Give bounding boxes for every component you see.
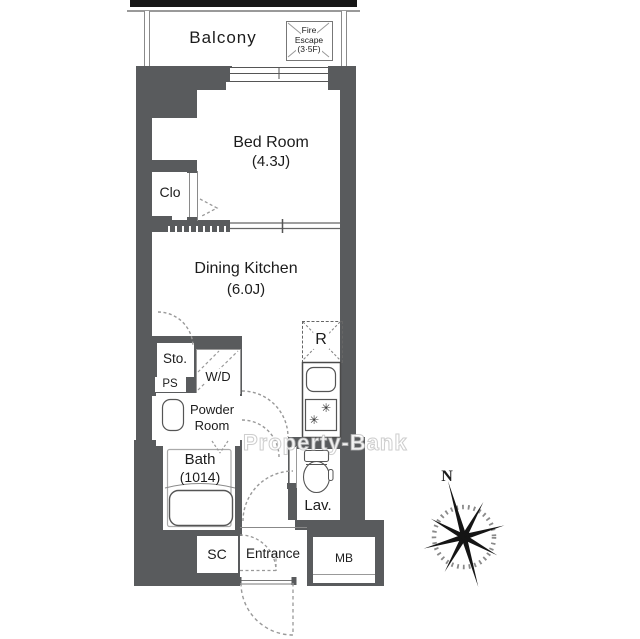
fire-escape-line3: (3·5F) [296, 45, 321, 55]
washer-dryer-label: W/D [204, 369, 231, 384]
pipe-space-label: PS [162, 378, 177, 390]
powder-room-label: Powder Room [190, 402, 234, 435]
toilet-bowl [304, 462, 330, 493]
closet-door [189, 171, 198, 221]
wall-partition-hatched [168, 220, 230, 232]
entrance-door-arc [241, 583, 293, 635]
storage-label: Sto. [163, 351, 187, 366]
kitchen-sink [307, 368, 336, 392]
wall-closet-bottom [136, 216, 172, 232]
closet-label: Clo [159, 184, 180, 200]
meter-box-label: MB [335, 551, 353, 565]
powder-room-line2: Room [190, 418, 234, 434]
dining-kitchen-name: Dining Kitchen [194, 260, 297, 278]
fire-escape-text: Fire Escape (3·5F) [288, 23, 330, 58]
bedroom-size: (4.3J) [252, 153, 290, 170]
dining-kitchen-size: (6.0J) [227, 281, 265, 298]
watermark: Property-Bank [243, 430, 408, 456]
top-black-bar [130, 0, 357, 7]
closet-door-arrow [200, 199, 217, 217]
bath-size: (1014) [180, 469, 220, 485]
refrigerator-label: R [313, 331, 329, 349]
balcony-rail-right [341, 11, 347, 67]
shoe-closet-label: SC [207, 546, 226, 562]
lavatory-label: Lav. [304, 497, 331, 514]
bedroom-window [230, 67, 328, 82]
entrance-hinge-right [292, 577, 297, 585]
hatch-pattern [168, 226, 230, 232]
bath-name: Bath [185, 451, 216, 468]
stove-burner-1: ✳ [321, 401, 331, 415]
powder-room-line1: Powder [190, 402, 234, 418]
compass-north-label: N [441, 468, 453, 486]
toilet-paper-holder [329, 470, 334, 481]
balcony-label: Balcony [189, 28, 256, 48]
compass-star [424, 481, 505, 587]
stove-burner-2: ✳ [309, 413, 319, 427]
lav-door-arc [243, 471, 293, 521]
balcony-rail-left [144, 11, 150, 67]
floor-plan: Balcony Fire Escape (3·5F) [0, 0, 640, 639]
compass-ring [434, 507, 494, 567]
entrance-label: Entrance [246, 546, 300, 561]
bedroom-name: Bed Room [233, 134, 309, 152]
wall-closet-top [136, 160, 197, 172]
balcony-top-line [127, 10, 360, 12]
meter-box-line [313, 574, 375, 575]
